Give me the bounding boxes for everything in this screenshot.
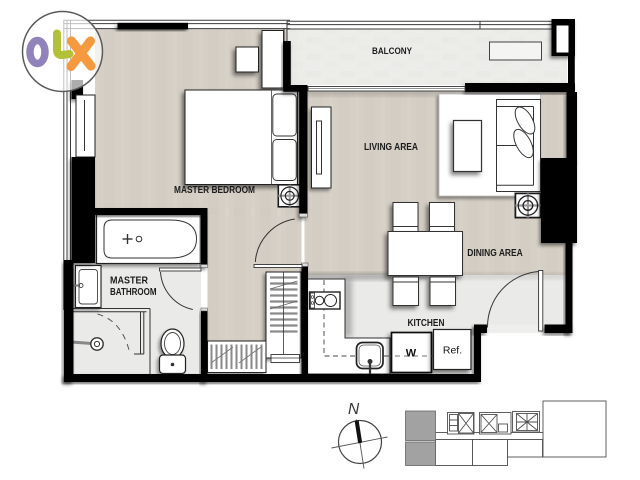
svg-text:N: N bbox=[348, 401, 360, 418]
svg-text:BATHROOM: BATHROOM bbox=[110, 287, 157, 298]
svg-text:MASTER: MASTER bbox=[110, 276, 149, 287]
svg-text:MASTER BEDROOM: MASTER BEDROOM bbox=[174, 185, 255, 196]
svg-text:BALCONY: BALCONY bbox=[372, 46, 413, 57]
svg-text:Ref.: Ref. bbox=[443, 345, 462, 357]
svg-text:DINING AREA: DINING AREA bbox=[467, 248, 523, 259]
svg-text:W: W bbox=[406, 348, 417, 360]
svg-text:KITCHEN: KITCHEN bbox=[408, 318, 445, 329]
svg-text:LIVING AREA: LIVING AREA bbox=[364, 142, 418, 153]
